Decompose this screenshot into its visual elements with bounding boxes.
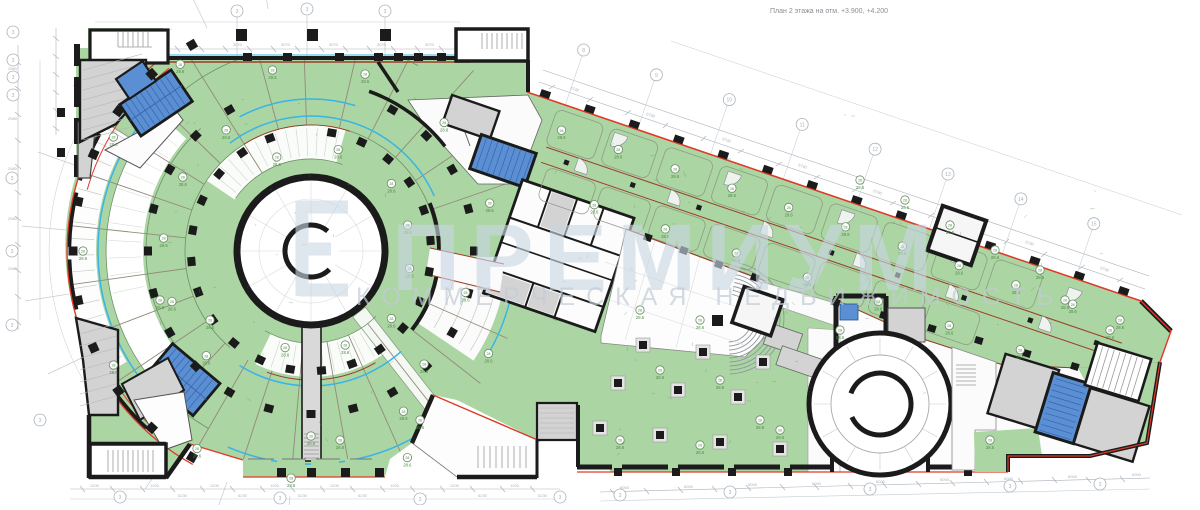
svg-text:28: 28 (178, 63, 182, 67)
svg-text:28: 28 (309, 435, 313, 439)
svg-text:28: 28 (162, 237, 166, 241)
svg-text:28: 28 (1018, 348, 1022, 352)
svg-text:1200: 1200 (330, 483, 340, 488)
svg-text:28.6: 28.6 (991, 255, 1000, 260)
svg-text:28.6: 28.6 (416, 425, 425, 430)
svg-text:28: 28 (422, 363, 426, 367)
svg-text:3: 3 (306, 7, 309, 13)
svg-text:28: 28 (560, 129, 564, 133)
svg-text:28: 28 (698, 444, 702, 448)
svg-text:3: 3 (12, 58, 15, 64)
svg-text:6000: 6000 (876, 479, 886, 484)
svg-text:28: 28 (758, 419, 762, 423)
svg-text:28.6: 28.6 (387, 324, 396, 329)
svg-text:13: 13 (945, 172, 951, 178)
svg-text:28.6: 28.6 (945, 331, 954, 336)
svg-text:6000: 6000 (940, 477, 950, 482)
svg-text:28: 28 (1071, 303, 1075, 307)
svg-text:28.6: 28.6 (176, 69, 185, 74)
svg-text:12: 12 (872, 147, 878, 153)
svg-text:28.6: 28.6 (109, 142, 118, 147)
svg-text:28.6: 28.6 (696, 325, 705, 330)
svg-text:28.6: 28.6 (656, 375, 665, 380)
svg-text:6000: 6000 (812, 481, 822, 486)
svg-text:28: 28 (204, 354, 208, 358)
svg-text:28: 28 (224, 128, 228, 132)
svg-text:3: 3 (279, 496, 282, 502)
svg-text:3070: 3070 (329, 42, 339, 47)
svg-text:3: 3 (384, 9, 387, 15)
svg-text:28: 28 (170, 300, 174, 304)
svg-text:28: 28 (336, 148, 340, 152)
svg-text:28.6: 28.6 (168, 307, 177, 312)
svg-text:28: 28 (1038, 269, 1042, 273)
svg-text:28: 28 (1118, 319, 1122, 323)
svg-text:3: 3 (12, 93, 15, 99)
svg-text:28.6: 28.6 (616, 445, 625, 450)
svg-text:28.6: 28.6 (268, 75, 277, 80)
svg-text:28.6: 28.6 (399, 416, 408, 421)
svg-text:6000: 6000 (684, 484, 694, 489)
svg-text:3: 3 (619, 493, 622, 499)
svg-text:28.6: 28.6 (287, 483, 296, 488)
svg-text:28: 28 (363, 73, 367, 77)
svg-text:3: 3 (11, 323, 14, 329)
svg-text:28: 28 (195, 447, 199, 451)
svg-text:1200: 1200 (150, 483, 160, 488)
svg-text:28.6: 28.6 (614, 155, 623, 160)
svg-text:КОММЕРЧЕСКАЯ НЕДВИЖИМОСТЬ: КОММЕРЧЕСКАЯ НЕДВИЖИМОСТЬ (356, 283, 1064, 311)
svg-text:6000: 6000 (1132, 472, 1142, 477)
svg-text:План 2 этажа на отм. +3.900, +: План 2 этажа на отм. +3.900, +4.200 (770, 8, 888, 15)
svg-text:28.6: 28.6 (856, 185, 865, 190)
svg-text:28.6: 28.6 (193, 454, 202, 459)
svg-text:3: 3 (419, 497, 422, 503)
svg-text:28: 28 (988, 439, 992, 443)
svg-text:28.6: 28.6 (179, 182, 188, 187)
svg-text:3070: 3070 (281, 42, 291, 47)
svg-text:28: 28 (993, 249, 997, 253)
svg-text:28.6: 28.6 (986, 445, 995, 450)
svg-text:28.6: 28.6 (79, 256, 88, 261)
svg-text:28.6: 28.6 (387, 189, 396, 194)
svg-text:28: 28 (112, 136, 116, 140)
svg-text:3: 3 (39, 418, 42, 424)
svg-text:28: 28 (730, 187, 734, 191)
svg-text:2980: 2980 (8, 266, 18, 271)
svg-text:6000: 6000 (1068, 474, 1078, 479)
svg-text:28: 28 (948, 224, 952, 228)
svg-text:3070: 3070 (377, 42, 387, 47)
svg-text:28: 28 (158, 299, 162, 303)
svg-text:28.6: 28.6 (1016, 355, 1025, 360)
svg-text:28: 28 (838, 329, 842, 333)
svg-text:3: 3 (11, 249, 14, 255)
svg-text:28: 28 (289, 477, 293, 481)
svg-text:28.6: 28.6 (440, 128, 449, 133)
svg-text:28.6: 28.6 (334, 155, 343, 160)
svg-text:28: 28 (275, 156, 279, 160)
svg-text:28.6: 28.6 (955, 271, 964, 276)
svg-text:28.6: 28.6 (341, 350, 350, 355)
svg-text:28.6: 28.6 (206, 325, 215, 330)
svg-text:28: 28 (402, 410, 406, 414)
svg-text:28: 28 (957, 264, 961, 268)
svg-text:28: 28 (112, 364, 116, 368)
svg-text:9: 9 (655, 73, 658, 79)
svg-text:3: 3 (12, 30, 15, 36)
svg-text:5230: 5230 (238, 493, 248, 498)
svg-text:28.6: 28.6 (1106, 335, 1115, 340)
svg-text:1200: 1200 (390, 483, 400, 488)
svg-text:28: 28 (418, 419, 422, 423)
svg-text:28.6: 28.6 (156, 305, 165, 310)
svg-text:10: 10 (727, 98, 733, 104)
svg-text:5230: 5230 (538, 493, 548, 498)
svg-text:28.6: 28.6 (222, 135, 231, 140)
svg-text:3: 3 (869, 487, 872, 493)
svg-text:3: 3 (559, 495, 562, 501)
svg-text:28.6: 28.6 (109, 370, 118, 375)
svg-text:5230: 5230 (478, 493, 488, 498)
svg-text:28.6: 28.6 (361, 79, 370, 84)
svg-text:5230: 5230 (298, 493, 308, 498)
svg-text:28: 28 (405, 456, 409, 460)
svg-text:28: 28 (947, 324, 951, 328)
svg-text:3: 3 (11, 176, 14, 182)
svg-text:28.6: 28.6 (1116, 325, 1125, 330)
svg-text:28.6: 28.6 (420, 369, 429, 374)
svg-text:3: 3 (729, 490, 732, 496)
svg-text:28: 28 (673, 167, 677, 171)
svg-text:28: 28 (1108, 329, 1112, 333)
svg-text:28.6: 28.6 (756, 425, 765, 430)
svg-text:2980: 2980 (8, 66, 18, 71)
svg-text:28: 28 (338, 439, 342, 443)
svg-text:28.6: 28.6 (671, 174, 680, 179)
svg-text:28: 28 (778, 429, 782, 433)
svg-text:28.6: 28.6 (281, 353, 290, 358)
svg-text:28: 28 (442, 121, 446, 125)
svg-text:28: 28 (903, 199, 907, 203)
svg-text:3: 3 (119, 495, 122, 501)
svg-text:2980: 2980 (8, 216, 18, 221)
svg-text:28.6: 28.6 (160, 243, 169, 248)
svg-text:1200: 1200 (210, 483, 220, 488)
svg-text:28: 28 (618, 439, 622, 443)
svg-text:28.6: 28.6 (403, 463, 412, 468)
svg-text:28.6: 28.6 (728, 193, 737, 198)
svg-text:28.6: 28.6 (273, 162, 282, 167)
svg-text:3: 3 (1099, 482, 1102, 488)
svg-text:15: 15 (1091, 222, 1097, 228)
svg-text:28.6: 28.6 (1069, 309, 1078, 314)
svg-text:28.6: 28.6 (336, 445, 345, 450)
svg-text:28: 28 (208, 319, 212, 323)
svg-text:6000: 6000 (748, 482, 758, 487)
svg-text:8: 8 (582, 48, 585, 54)
svg-text:28.6: 28.6 (946, 230, 955, 235)
svg-text:5230: 5230 (178, 493, 188, 498)
svg-text:2980: 2980 (8, 116, 18, 121)
svg-text:28.6: 28.6 (484, 359, 493, 364)
svg-text:11: 11 (800, 122, 805, 128)
svg-text:2980: 2980 (8, 166, 18, 171)
svg-text:28.6: 28.6 (696, 450, 705, 455)
svg-text:28: 28 (487, 352, 491, 356)
svg-text:3070: 3070 (233, 42, 243, 47)
svg-text:28: 28 (181, 176, 185, 180)
svg-text:28: 28 (858, 179, 862, 183)
svg-text:28: 28 (283, 346, 287, 350)
svg-text:28.6: 28.6 (202, 361, 211, 366)
svg-text:28: 28 (616, 148, 620, 152)
svg-text:3070: 3070 (425, 42, 435, 47)
svg-text:1200: 1200 (510, 483, 520, 488)
svg-text:3: 3 (1009, 484, 1012, 490)
svg-text:28.6: 28.6 (716, 385, 725, 390)
svg-text:28.6: 28.6 (776, 435, 785, 440)
svg-text:28.6: 28.6 (1036, 275, 1045, 280)
svg-text:28: 28 (658, 369, 662, 373)
svg-text:1200: 1200 (450, 483, 460, 488)
svg-text:5230: 5230 (358, 493, 368, 498)
svg-text:1200: 1200 (90, 483, 100, 488)
svg-text:28.6: 28.6 (836, 335, 845, 340)
svg-text:14: 14 (1018, 197, 1024, 203)
svg-text:28: 28 (389, 317, 393, 321)
svg-text:28: 28 (698, 319, 702, 323)
svg-text:3: 3 (236, 9, 239, 15)
svg-text:28: 28 (343, 344, 347, 348)
svg-text:28.6: 28.6 (636, 315, 645, 320)
svg-text:1200: 1200 (270, 483, 280, 488)
svg-text:28: 28 (389, 182, 393, 186)
svg-text:28.6: 28.6 (307, 441, 316, 446)
svg-text:28: 28 (81, 250, 85, 254)
svg-text:28.6: 28.6 (557, 135, 566, 140)
svg-text:28: 28 (271, 69, 275, 73)
svg-text:3: 3 (12, 75, 15, 81)
